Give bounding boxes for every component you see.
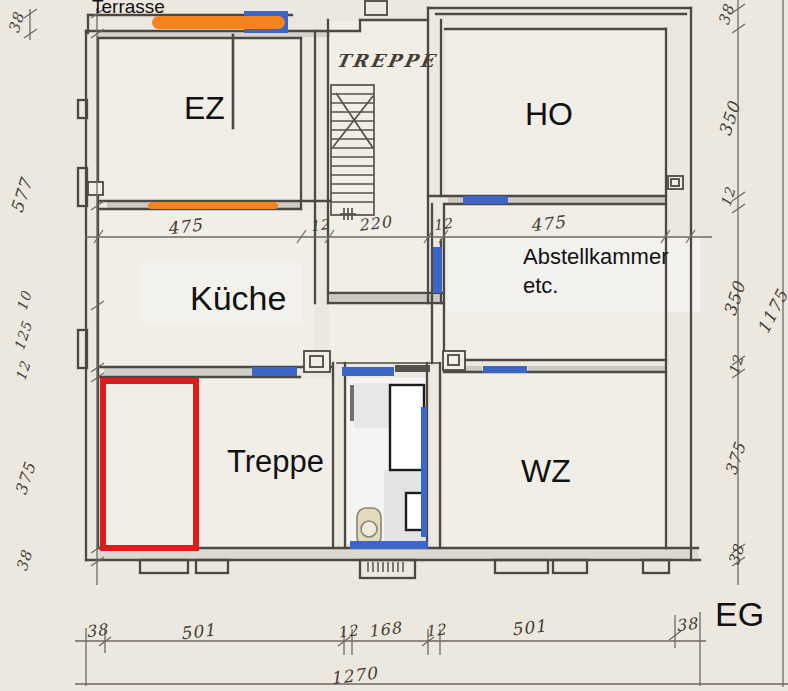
room-label-wz: WZ (521, 455, 571, 487)
dim-label-bottom-501b: 501 (510, 617, 547, 638)
room-label-treppe-room: Treppe (227, 446, 324, 477)
room-label-abstellkammer: Abstellkammer (523, 246, 668, 268)
dim-label-mid-475a: 475 (166, 216, 203, 237)
orange-highlight-terrasse (152, 16, 285, 29)
dim-label-mid-12b: 12 (432, 216, 453, 232)
blue-highlight-wz-wall (483, 366, 527, 373)
dim-label-bottom-38b: 38 (675, 616, 699, 635)
blue-highlight-bath-top (342, 367, 394, 376)
blue-highlight-bath-right (421, 407, 427, 537)
blue-highlight-bath-bottom (350, 541, 428, 549)
dim-label-bottom-168: 168 (367, 620, 402, 640)
blue-highlight-ho-wall (463, 196, 508, 204)
dim-label-mid-12a: 12 (309, 217, 330, 233)
room-label-terrasse: Terrasse (92, 0, 165, 16)
dim-label-bottom-38a: 38 (85, 622, 109, 641)
floor-plan-drawing (0, 0, 788, 691)
room-label-treppe-stairs: TREPPE (334, 52, 438, 70)
dim-label-bottom-501a: 501 (179, 621, 216, 642)
orange-highlight-ez-wall (148, 202, 278, 209)
room-label-kueche: Küche (190, 281, 286, 315)
room-label-ez: EZ (184, 92, 225, 124)
floor-plan: Terrasse TREPPE EZ HO Küche Abstellkamme… (0, 0, 788, 691)
blue-highlight-stair-wall (433, 247, 442, 293)
dim-label-bottom-12b: 12 (425, 622, 448, 639)
dim-label-bottom-12a: 12 (337, 623, 360, 640)
room-label-ho: HO (525, 98, 573, 130)
room-label-abstellkammer-etc: etc. (523, 275, 558, 297)
bathtub (390, 385, 424, 470)
dim-label-mid-475b: 475 (529, 213, 566, 234)
blue-highlight-kueche-wall (252, 367, 297, 376)
floor-label-eg: EG (715, 597, 764, 631)
dim-label-mid-220: 220 (357, 214, 392, 234)
